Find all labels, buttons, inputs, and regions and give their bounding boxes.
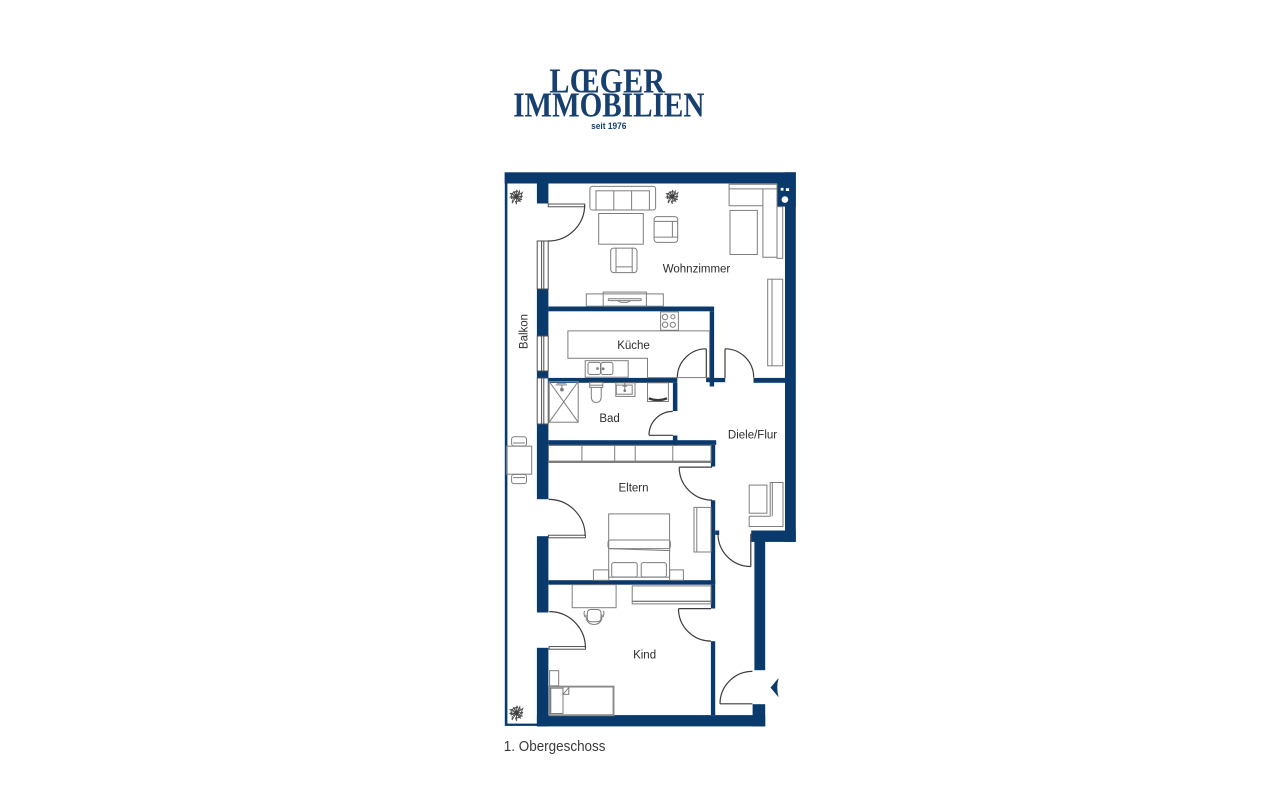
svg-text:IMMOBILIEN: IMMOBILIEN — [513, 86, 704, 125]
svg-text:Bad: Bad — [599, 413, 619, 425]
svg-text:Küche: Küche — [617, 340, 650, 352]
svg-text:Wohnzimmer: Wohnzimmer — [663, 263, 731, 275]
svg-text:seit 1976: seit 1976 — [591, 121, 626, 131]
svg-text:Balkon: Balkon — [518, 314, 530, 349]
svg-text:Eltern: Eltern — [618, 482, 648, 494]
svg-text:Kind: Kind — [633, 649, 656, 661]
svg-text:1. Obergeschoss: 1. Obergeschoss — [504, 739, 606, 755]
svg-text:Diele/Flur: Diele/Flur — [728, 430, 777, 442]
